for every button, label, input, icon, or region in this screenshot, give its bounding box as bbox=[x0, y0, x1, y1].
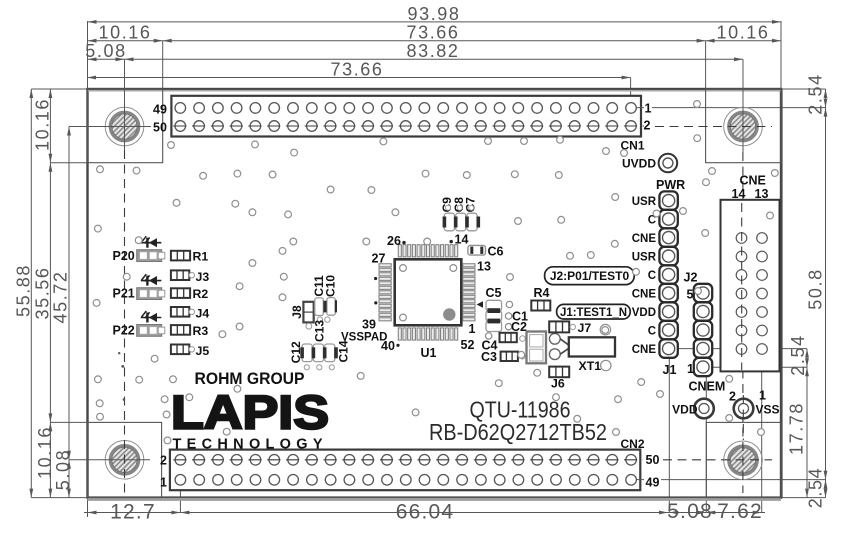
svg-text:1: 1 bbox=[645, 102, 652, 116]
svg-text:52: 52 bbox=[461, 338, 475, 352]
svg-text:P20: P20 bbox=[113, 249, 135, 263]
svg-text:2.54: 2.54 bbox=[806, 73, 826, 114]
svg-text:49: 49 bbox=[646, 476, 660, 490]
svg-text:C: C bbox=[648, 270, 656, 282]
svg-text:C6: C6 bbox=[488, 245, 504, 259]
svg-text:13: 13 bbox=[477, 260, 491, 274]
svg-text:2.54: 2.54 bbox=[788, 334, 808, 375]
svg-text:14: 14 bbox=[455, 233, 469, 247]
svg-text:USR: USR bbox=[632, 196, 657, 208]
svg-text:J7: J7 bbox=[578, 321, 592, 335]
svg-text:49: 49 bbox=[153, 103, 167, 117]
svg-text:5: 5 bbox=[687, 288, 694, 302]
svg-text:VDD: VDD bbox=[632, 307, 656, 319]
svg-text:2: 2 bbox=[644, 119, 651, 133]
svg-text:5.08: 5.08 bbox=[85, 41, 126, 61]
svg-text:J1: J1 bbox=[663, 363, 677, 377]
svg-text:J1:TEST1_N: J1:TEST1_N bbox=[560, 307, 627, 319]
svg-text:17.78: 17.78 bbox=[787, 402, 807, 455]
svg-text:50: 50 bbox=[646, 453, 660, 467]
svg-text:J5: J5 bbox=[196, 344, 210, 358]
svg-text:VSS: VSS bbox=[756, 403, 780, 417]
svg-text:XT1: XT1 bbox=[579, 359, 602, 373]
svg-text:C10: C10 bbox=[324, 275, 338, 297]
svg-text:1: 1 bbox=[160, 476, 167, 490]
svg-text:CNE: CNE bbox=[632, 288, 657, 300]
svg-text:CNEM: CNEM bbox=[689, 380, 726, 394]
svg-text:10.16: 10.16 bbox=[98, 23, 151, 43]
svg-text:LAPIS: LAPIS bbox=[171, 386, 329, 439]
svg-text:45.72: 45.72 bbox=[51, 270, 71, 323]
svg-text:P21: P21 bbox=[113, 287, 135, 301]
svg-text:7.62: 7.62 bbox=[717, 500, 763, 523]
svg-text:J8: J8 bbox=[290, 305, 304, 319]
svg-text:2: 2 bbox=[729, 390, 736, 404]
svg-text:CNE: CNE bbox=[632, 344, 657, 356]
svg-text:66.04: 66.04 bbox=[396, 501, 455, 524]
svg-text:UVDD: UVDD bbox=[622, 157, 656, 171]
svg-text:83.82: 83.82 bbox=[406, 41, 459, 61]
svg-text:J3: J3 bbox=[196, 270, 210, 284]
svg-text:1: 1 bbox=[759, 389, 766, 403]
svg-text:R1: R1 bbox=[193, 250, 209, 264]
svg-text:J2:P01/TEST0: J2:P01/TEST0 bbox=[550, 269, 630, 283]
svg-text:P22: P22 bbox=[113, 324, 135, 338]
svg-text:U1: U1 bbox=[421, 346, 437, 360]
svg-text:PWR: PWR bbox=[656, 178, 685, 192]
svg-text:J4: J4 bbox=[196, 307, 210, 321]
svg-text:39: 39 bbox=[362, 318, 376, 332]
svg-text:CNE: CNE bbox=[740, 174, 766, 188]
svg-text:5.08: 5.08 bbox=[53, 449, 73, 490]
svg-text:C13: C13 bbox=[313, 320, 327, 342]
svg-text:10.16: 10.16 bbox=[35, 426, 55, 479]
svg-text:C3: C3 bbox=[481, 350, 497, 364]
svg-text:CN2: CN2 bbox=[621, 437, 645, 451]
svg-text:C5: C5 bbox=[486, 286, 502, 300]
svg-text:5.08: 5.08 bbox=[667, 500, 713, 523]
svg-text:93.98: 93.98 bbox=[407, 4, 460, 24]
svg-text:J6: J6 bbox=[551, 377, 565, 391]
svg-text:50: 50 bbox=[153, 121, 167, 135]
svg-text:50.8: 50.8 bbox=[806, 268, 826, 309]
svg-text:R4: R4 bbox=[534, 286, 550, 300]
svg-text:10.16: 10.16 bbox=[33, 98, 53, 151]
svg-text:CNE: CNE bbox=[632, 233, 657, 245]
svg-text:55.88: 55.88 bbox=[14, 264, 34, 317]
svg-text:2.54: 2.54 bbox=[806, 467, 826, 508]
svg-text:USR: USR bbox=[632, 251, 657, 263]
svg-text:R2: R2 bbox=[193, 287, 209, 301]
svg-text:10.16: 10.16 bbox=[716, 23, 769, 43]
svg-text:RB-D62Q2712TB52: RB-D62Q2712TB52 bbox=[429, 419, 607, 445]
svg-text:VDD: VDD bbox=[672, 403, 698, 417]
svg-text:27: 27 bbox=[372, 252, 386, 266]
svg-text:C: C bbox=[648, 325, 656, 337]
svg-text:26: 26 bbox=[387, 234, 401, 248]
svg-text:1: 1 bbox=[687, 362, 694, 376]
svg-text:R3: R3 bbox=[193, 324, 209, 338]
svg-text:J2: J2 bbox=[684, 271, 698, 285]
svg-text:73.66: 73.66 bbox=[406, 23, 459, 43]
svg-text:12.7: 12.7 bbox=[110, 501, 156, 524]
svg-text:2: 2 bbox=[160, 454, 167, 468]
svg-text:1: 1 bbox=[469, 322, 476, 336]
svg-text:73.66: 73.66 bbox=[330, 60, 383, 80]
svg-text:C14: C14 bbox=[337, 340, 351, 362]
svg-text:35.56: 35.56 bbox=[33, 266, 53, 319]
